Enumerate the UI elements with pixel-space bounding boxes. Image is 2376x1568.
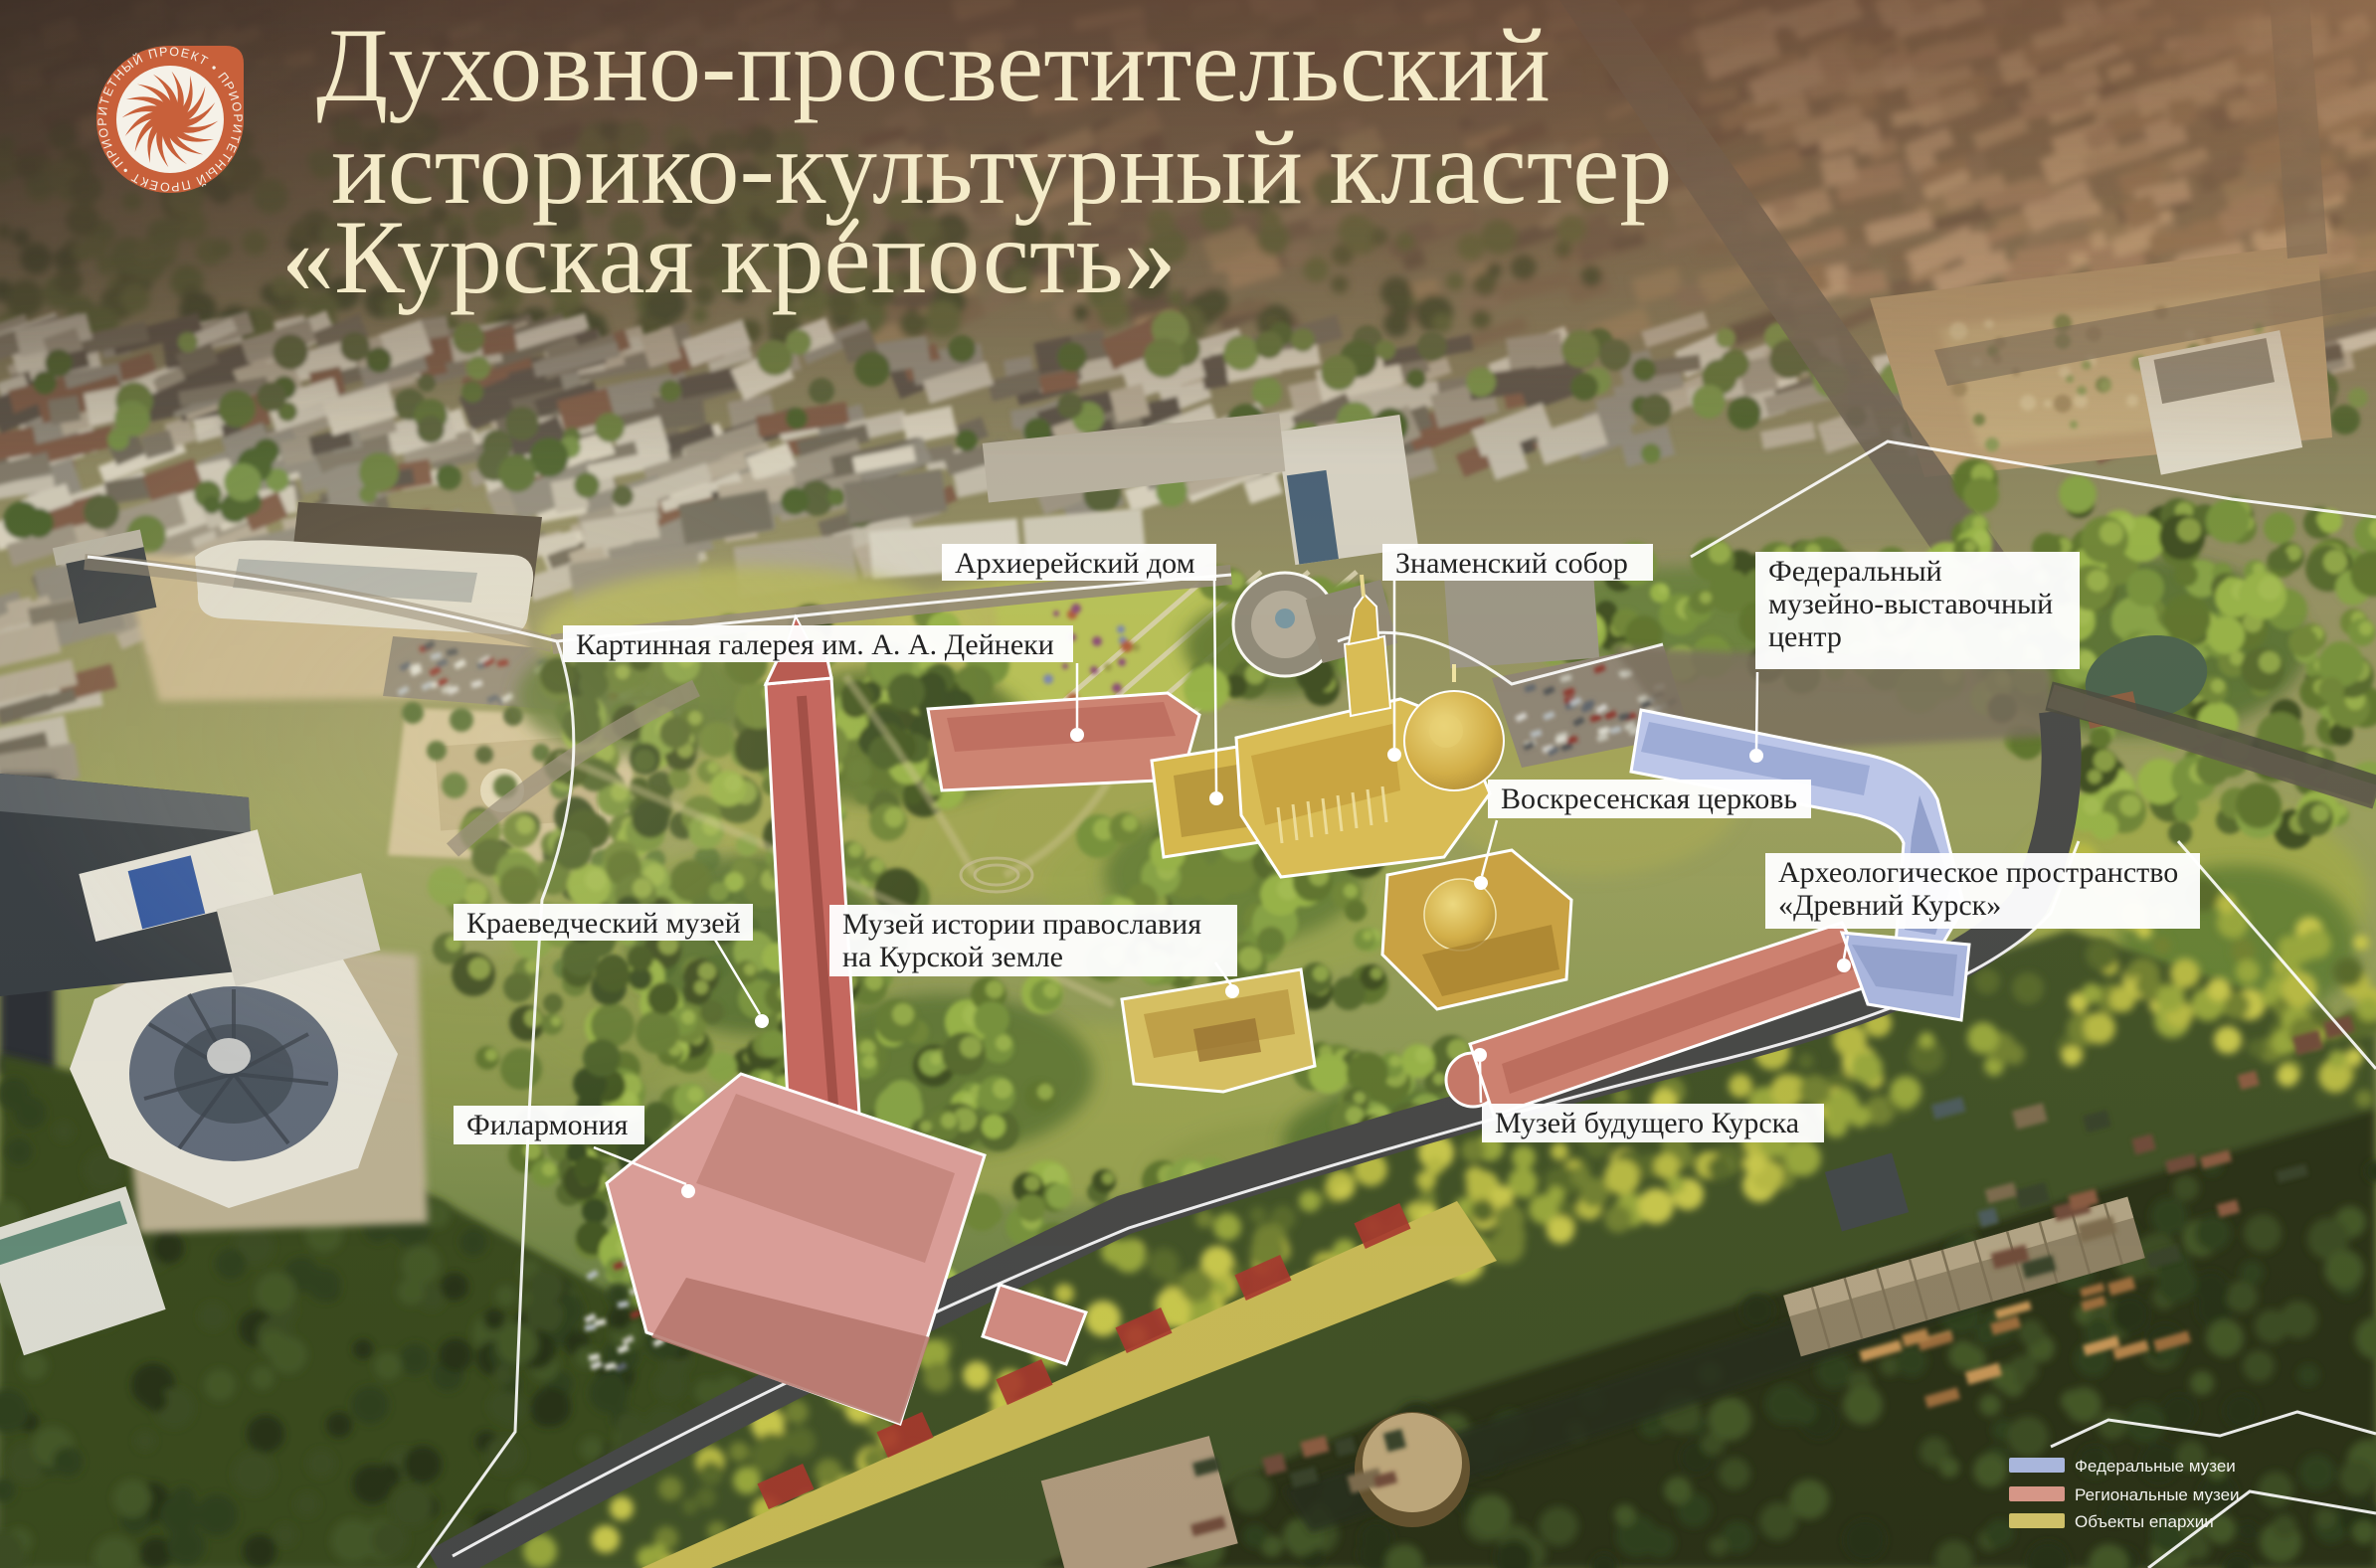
svg-text:Федеральные музеи: Федеральные музеи [2075, 1457, 2236, 1476]
svg-text:центр: центр [1768, 620, 1842, 653]
svg-text:Музей будущего Курска: Музей будущего Курска [1495, 1107, 1799, 1139]
svg-text:Архиерейский дом: Архиерейский дом [955, 547, 1195, 580]
svg-text:Знаменский собор: Знаменский собор [1395, 547, 1628, 580]
svg-text:музейно-выставочный: музейно-выставочный [1768, 588, 2053, 620]
svg-text:«Древний Курск»: «Древний Курск» [1778, 889, 2001, 922]
svg-text:Региональные музеи: Региональные музеи [2075, 1485, 2240, 1504]
svg-text:«Курская крепость»: «Курская крепость» [281, 199, 1177, 315]
svg-text:Воскресенская церковь: Воскресенская церковь [1501, 783, 1797, 815]
svg-text:Духовно-просветительский: Духовно-просветительский [316, 7, 1551, 123]
svg-text:Археологическое пространство: Археологическое пространство [1778, 856, 2178, 889]
svg-text:Музей истории православия: Музей истории православия [842, 908, 1201, 941]
svg-text:Краеведческий музей: Краеведческий музей [466, 907, 741, 940]
svg-text:Федеральный: Федеральный [1768, 555, 1942, 588]
svg-text:Филармония: Филармония [466, 1109, 629, 1141]
svg-text:Картинная галерея им. А. А. Де: Картинная галерея им. А. А. Дейнеки [576, 628, 1054, 661]
svg-text:на Курской земле: на Курской земле [842, 941, 1063, 973]
svg-text:Объекты епархии: Объекты епархии [2075, 1512, 2214, 1531]
